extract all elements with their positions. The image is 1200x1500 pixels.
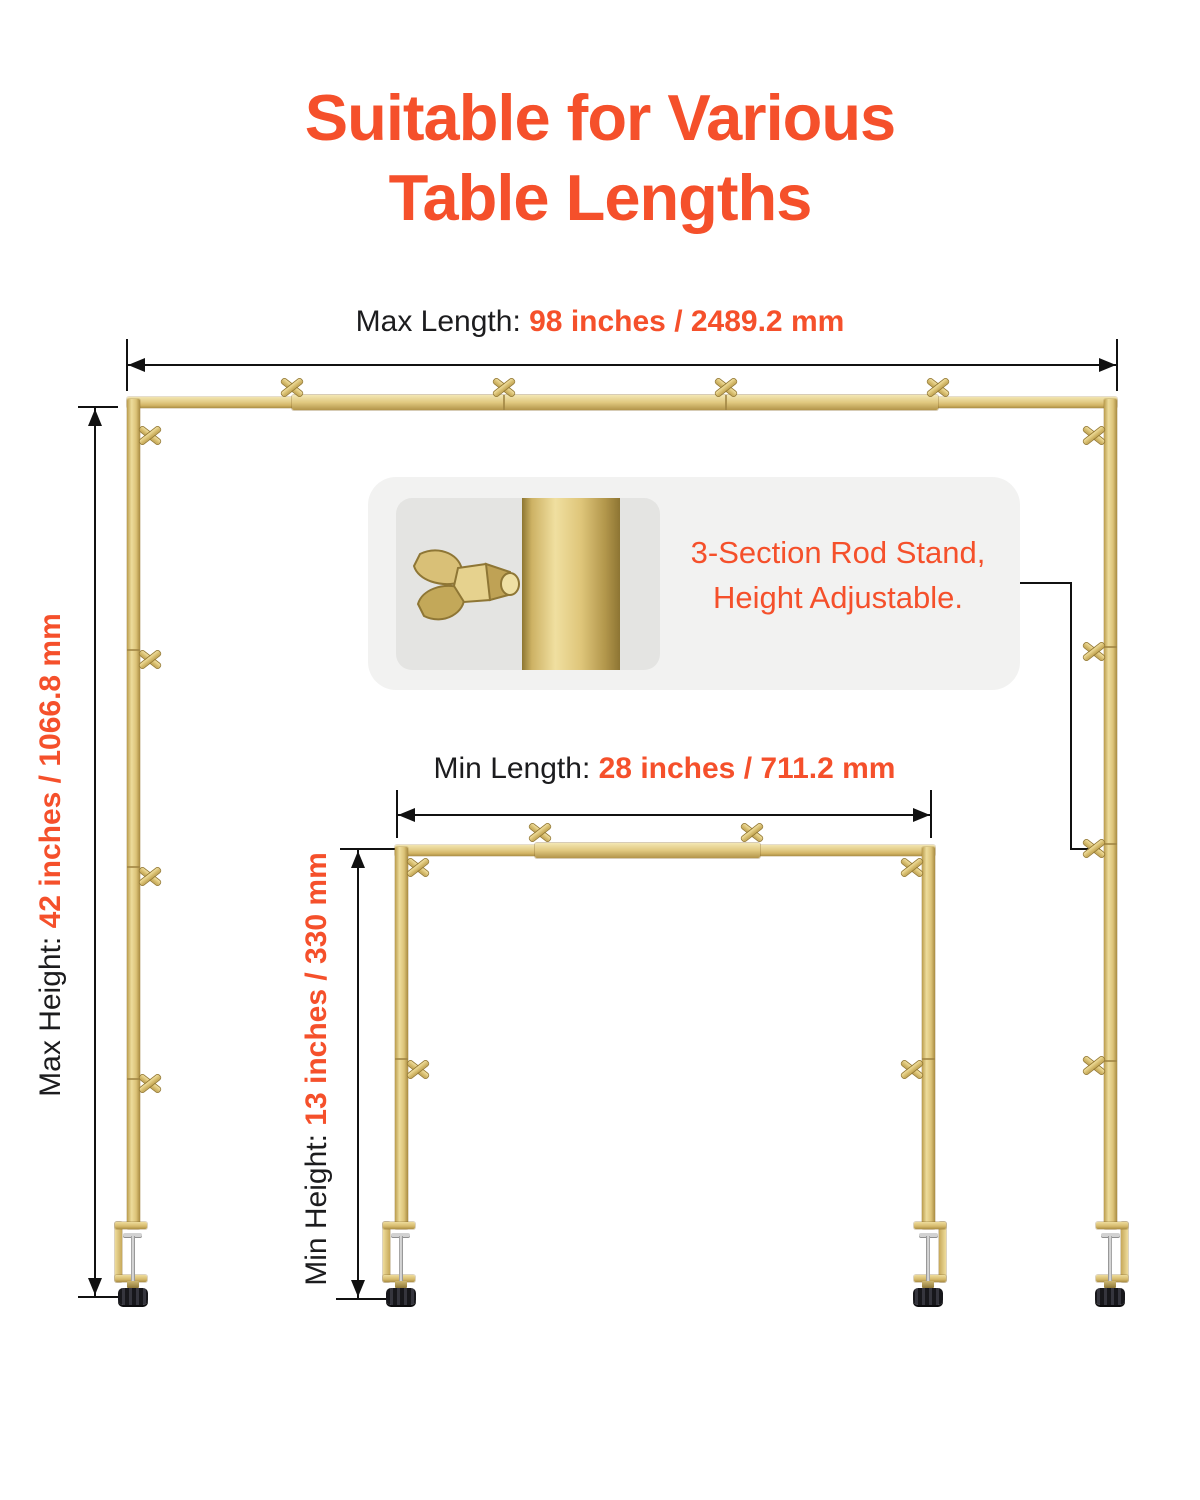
clamp-frame xyxy=(383,1222,415,1229)
min-length-value: 28 inches / 711.2 mm xyxy=(599,752,896,785)
page-title-line2: Table Lengths xyxy=(0,158,1200,238)
dimension-arrow-icon xyxy=(398,808,415,822)
wing-nut-icon xyxy=(1081,1053,1107,1079)
wing-nut-icon xyxy=(739,820,765,846)
wing-nut-icon xyxy=(527,820,553,846)
wing-nut-icon xyxy=(1081,639,1107,665)
clamp-frame xyxy=(914,1222,946,1229)
min-height-value: 13 inches / 330 mm xyxy=(300,852,333,1126)
clamp-hex-nut xyxy=(922,1281,934,1288)
dimension-arrow-icon xyxy=(128,358,145,372)
max-height-value: 42 inches / 1066.8 mm xyxy=(34,613,67,928)
max-length-label: Max Length: 98 inches / 2489.2 mm xyxy=(0,305,1200,339)
large-frame-top-rod-sleeve xyxy=(292,395,938,410)
clamp-knob xyxy=(913,1288,943,1305)
clamp-knob xyxy=(118,1288,148,1305)
small-frame-right-rod xyxy=(922,847,935,1229)
clamp-frame xyxy=(1096,1222,1128,1229)
table-clamp xyxy=(115,1222,147,1306)
callout-leader-line xyxy=(1020,582,1072,584)
wing-nut-icon xyxy=(137,1071,163,1097)
wing-nut-photo xyxy=(396,498,660,670)
wing-nut-icon xyxy=(1081,423,1107,449)
wing-nut-icon xyxy=(899,855,925,881)
clamp-frame xyxy=(383,1222,390,1282)
wing-nut-icon xyxy=(137,423,163,449)
max-length-label-text: Max Length: xyxy=(356,305,529,338)
clamp-frame xyxy=(115,1222,147,1229)
wing-nut-icon xyxy=(1081,836,1107,862)
table-clamp xyxy=(914,1222,946,1306)
min-length-label-text: Min Length: xyxy=(434,752,599,785)
wing-nut-icon xyxy=(279,375,305,401)
clamp-knob xyxy=(386,1288,416,1305)
dimension-arrow-icon xyxy=(1099,358,1116,372)
clamp-frame xyxy=(1121,1222,1128,1282)
infographic-canvas: Suitable for Various Table Lengths Max L… xyxy=(0,0,1200,1500)
callout-leader-line xyxy=(1070,582,1072,850)
max-height-label: Max Height: 42 inches / 1066.8 mm xyxy=(34,560,68,1150)
wing-nut-icon xyxy=(899,1057,925,1083)
clamp-screw xyxy=(1108,1236,1112,1282)
dimension-arrow-icon xyxy=(351,1280,365,1297)
dimension-arrow-icon xyxy=(88,1278,102,1295)
table-clamp xyxy=(383,1222,415,1306)
wing-nut-icon xyxy=(410,542,540,628)
max-length-value: 98 inches / 2489.2 mm xyxy=(529,305,844,338)
max-height-label-text: Max Height: xyxy=(34,928,67,1096)
clamp-knob xyxy=(1095,1288,1125,1305)
wing-nut-icon xyxy=(491,375,517,401)
dimension-arrow-icon xyxy=(351,851,365,868)
wing-nut-icon xyxy=(137,864,163,890)
min-length-label: Min Length: 28 inches / 711.2 mm xyxy=(397,752,932,786)
clamp-frame xyxy=(115,1222,122,1282)
callout-text-line2: Height Adjustable. xyxy=(668,575,1008,620)
small-frame-top-rod-sleeve xyxy=(535,843,760,858)
min-height-label: Min Height: 13 inches / 330 mm xyxy=(300,809,334,1329)
clamp-hex-nut xyxy=(395,1281,407,1288)
max-length-dimension-line xyxy=(127,364,1117,366)
min-height-dimension-line xyxy=(357,850,359,1298)
wing-nut-icon xyxy=(925,375,951,401)
large-frame-left-rod xyxy=(127,399,140,1229)
min-height-label-text: Min Height: xyxy=(300,1126,333,1286)
wing-nut-icon xyxy=(713,375,739,401)
callout-text: 3-Section Rod Stand, Height Adjustable. xyxy=(668,530,1008,620)
large-frame-right-rod xyxy=(1104,399,1117,1229)
max-height-tick-top xyxy=(78,406,118,408)
wing-nut-icon xyxy=(405,1057,431,1083)
clamp-screw xyxy=(926,1236,930,1282)
clamp-hex-nut xyxy=(1104,1281,1116,1288)
clamp-screw xyxy=(399,1236,403,1282)
max-height-dimension-line xyxy=(94,408,96,1296)
page-title: Suitable for Various Table Lengths xyxy=(0,78,1200,238)
wing-nut-icon xyxy=(137,647,163,673)
wing-nut-icon xyxy=(405,855,431,881)
clamp-frame xyxy=(939,1222,946,1282)
feature-callout: 3-Section Rod Stand, Height Adjustable. xyxy=(368,477,1020,690)
dimension-arrow-icon xyxy=(913,808,930,822)
max-height-tick-bottom xyxy=(78,1296,118,1298)
clamp-hex-nut xyxy=(127,1281,139,1288)
table-clamp xyxy=(1096,1222,1128,1306)
clamp-screw xyxy=(131,1236,135,1282)
min-height-tick-top xyxy=(340,848,395,850)
dimension-arrow-icon xyxy=(88,409,102,426)
callout-text-line1: 3-Section Rod Stand, xyxy=(668,530,1008,575)
small-frame-left-rod xyxy=(395,847,408,1229)
page-title-line1: Suitable for Various xyxy=(0,78,1200,158)
min-length-dimension-line xyxy=(397,814,932,816)
